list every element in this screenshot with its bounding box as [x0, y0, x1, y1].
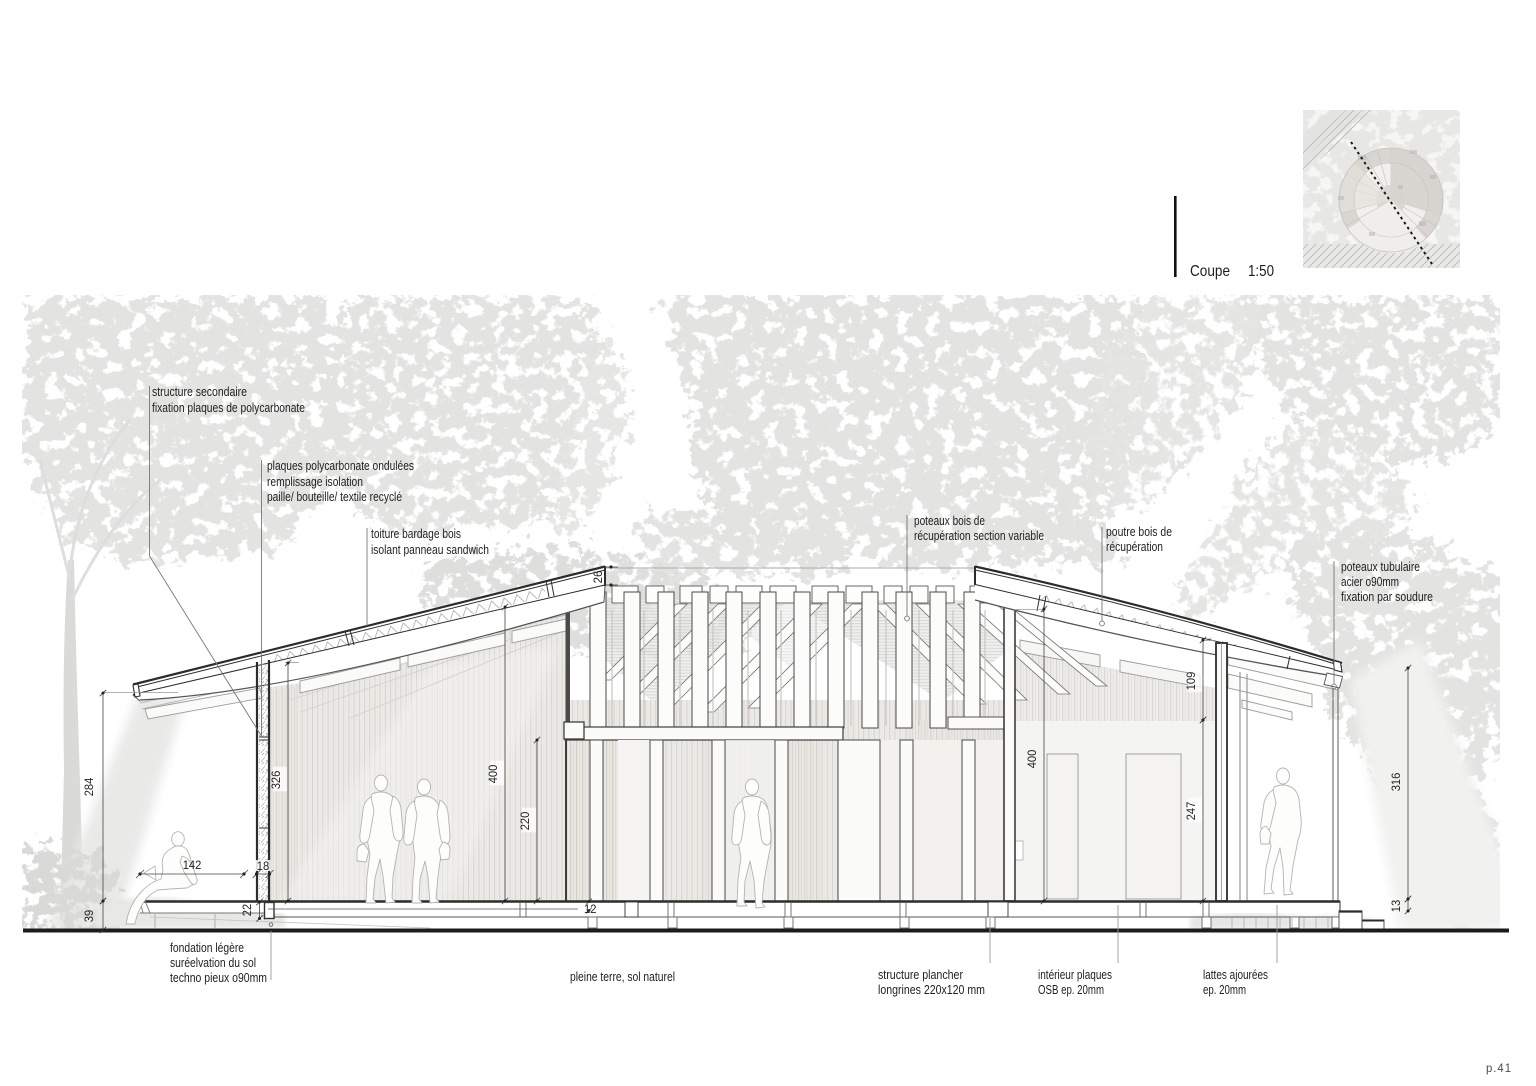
svg-text:326: 326 — [269, 770, 283, 789]
svg-text:toiture bardage bois: toiture bardage bois — [371, 526, 461, 541]
svg-text:13: 13 — [1389, 900, 1403, 913]
svg-text:Coupe: Coupe — [1190, 263, 1230, 280]
svg-text:paille/ bouteille/ textile rec: paille/ bouteille/ textile recyclé — [267, 489, 402, 504]
svg-text:plaques polycarbonate ondulées: plaques polycarbonate ondulées — [267, 458, 414, 473]
svg-text:récupération: récupération — [1106, 539, 1163, 554]
svg-text:1:50: 1:50 — [1248, 263, 1274, 280]
svg-text:284: 284 — [82, 777, 96, 796]
svg-text:structure plancher: structure plancher — [878, 967, 963, 982]
svg-text:intérieur plaques: intérieur plaques — [1038, 967, 1112, 982]
svg-text:fixation plaques de polycarbon: fixation plaques de polycarbonate — [152, 400, 305, 415]
svg-text:18: 18 — [257, 859, 270, 873]
svg-text:isolant panneau sandwich: isolant panneau sandwich — [371, 542, 489, 557]
svg-text:poteaux bois de: poteaux bois de — [914, 513, 985, 528]
svg-text:220: 220 — [518, 811, 532, 830]
svg-text:poutre bois de: poutre bois de — [1106, 524, 1172, 539]
svg-text:ep. 20mm: ep. 20mm — [1203, 982, 1246, 997]
svg-text:fondation légère: fondation légère — [170, 940, 244, 955]
svg-text:p.41: p.41 — [1486, 1063, 1512, 1075]
svg-text:400: 400 — [1025, 749, 1039, 768]
svg-text:suréelvation du sol: suréelvation du sol — [170, 955, 256, 970]
svg-text:26: 26 — [593, 571, 605, 584]
svg-text:12: 12 — [584, 902, 597, 916]
svg-text:poteaux tubulaire: poteaux tubulaire — [1341, 559, 1420, 574]
svg-text:structure secondaire: structure secondaire — [152, 384, 247, 399]
svg-text:109: 109 — [1184, 671, 1198, 690]
svg-text:142: 142 — [183, 858, 202, 872]
svg-text:fixation par soudure: fixation par soudure — [1341, 589, 1433, 604]
svg-text:acier o90mm: acier o90mm — [1341, 574, 1399, 589]
svg-text:247: 247 — [1184, 801, 1198, 820]
svg-text:316: 316 — [1389, 772, 1403, 791]
svg-text:OSB ep. 20mm: OSB ep. 20mm — [1038, 982, 1104, 997]
svg-text:400: 400 — [486, 764, 500, 783]
svg-text:remplissage isolation: remplissage isolation — [267, 474, 363, 489]
svg-text:longrines 220x120 mm: longrines 220x120 mm — [878, 982, 985, 997]
svg-text:récupération section variable: récupération section variable — [914, 528, 1044, 543]
svg-text:39: 39 — [82, 910, 96, 923]
svg-text:22: 22 — [240, 904, 254, 917]
svg-text:techno pieux o90mm: techno pieux o90mm — [170, 970, 267, 985]
svg-text:lattes ajourées: lattes ajourées — [1203, 967, 1268, 982]
svg-text:pleine terre, sol naturel: pleine terre, sol naturel — [570, 969, 675, 984]
